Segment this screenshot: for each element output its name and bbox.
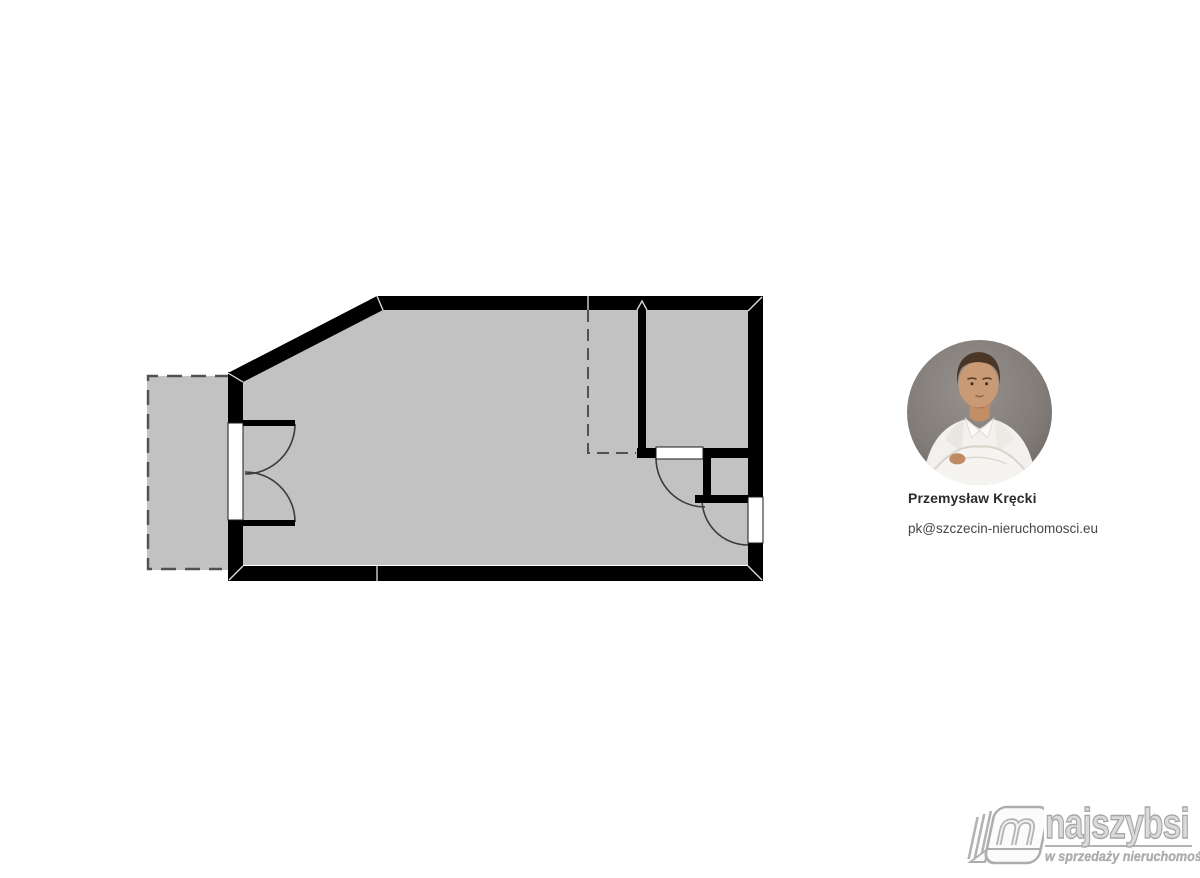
wall-interior-horizontal-left (637, 448, 656, 458)
apartment-floor (243, 310, 748, 565)
balcony-door-leaf-bottom (243, 520, 295, 526)
wall-left-upper (228, 372, 243, 423)
wall-right-upper (748, 296, 763, 497)
interior-door-opening (656, 447, 703, 459)
brand-tagline: w sprzedaży nieruchomości (1045, 848, 1200, 864)
balcony-terrace (147, 376, 230, 570)
agent-name: Przemysław Kręcki (908, 490, 1037, 506)
brand-name: najszybsi (1045, 804, 1193, 844)
wall-bottom (228, 566, 763, 581)
book-m-logo-icon (956, 801, 1044, 869)
entrance-door-opening (748, 497, 763, 543)
wall-interior-horizontal-right (703, 448, 752, 458)
balcony-door-leaf-top (243, 420, 295, 426)
balcony-door-opening (228, 423, 243, 520)
page: Przemysław Kręcki pk@szczecin-nieruchomo… (0, 0, 1200, 878)
brand-logo: najszybsi w sprzedaży nieruchomości (956, 801, 1200, 869)
agent-email: pk@szczecin-nieruchomosci.eu (908, 521, 1098, 536)
wall-right-lower (748, 543, 763, 581)
wall-top (377, 296, 763, 310)
entrance-door-leaf (695, 495, 748, 503)
agent-photo (906, 339, 1053, 486)
wall-interior-vertical (638, 310, 646, 450)
